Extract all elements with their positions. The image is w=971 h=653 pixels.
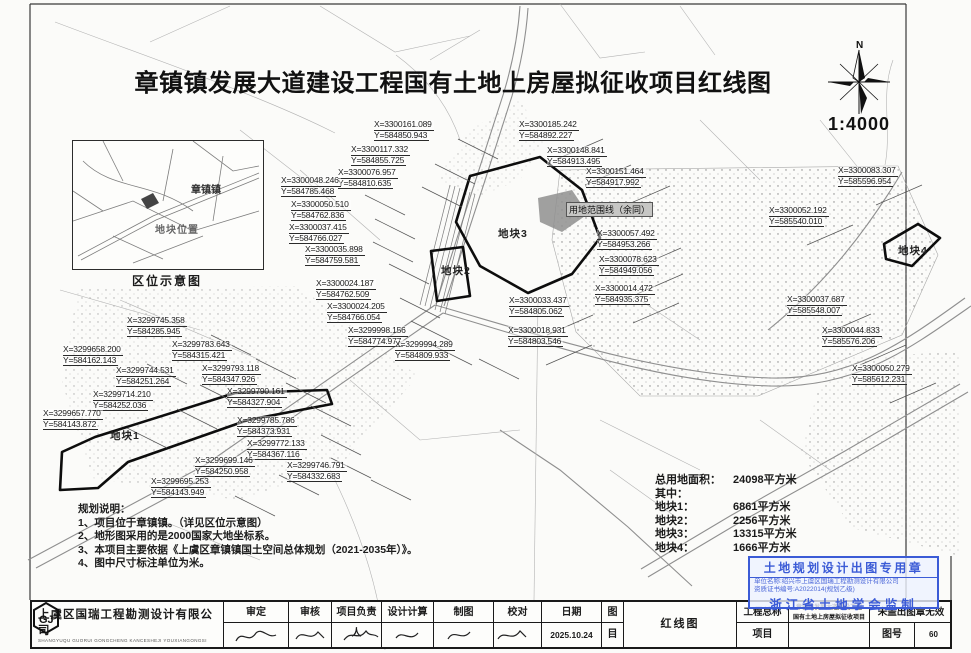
company-cell: GJ 上虞区国瑞工程勘测设计有限公司 SHANGYUQU GUORUI GONG… — [32, 602, 224, 647]
coordinate-label: X=3300014.472Y=584935.375 — [595, 284, 655, 305]
plot-label: 地块4 — [898, 243, 928, 258]
note-item: 1、项目位于章镇镇。（详见区位示意图） — [78, 517, 450, 531]
coordinate-label: X=3300076.957Y=584810.635 — [338, 168, 398, 189]
svg-text:GJ: GJ — [39, 614, 54, 626]
drawing-name-cell: 红线图 — [624, 602, 737, 647]
coordinate-label: X=3300033.437Y=584805.062 — [509, 296, 569, 317]
coordinate-label: X=3300083.307Y=585596.954 — [838, 166, 898, 187]
coordinate-label: X=3300161.089Y=584850.943 — [374, 120, 434, 141]
date-value: 2025.10.24 — [542, 623, 601, 647]
stamp-issuer: 浙江省土地学会监制 — [750, 593, 937, 613]
company-logo-icon: GJ — [32, 602, 60, 634]
coordinate-label: X=3299714.210Y=584252.036 — [93, 390, 153, 411]
coordinate-label: X=3299746.791Y=584332.683 — [287, 461, 347, 482]
coordinate-label: X=3300185.242Y=584892.227 — [519, 120, 579, 141]
inset-site-label: 地块位置 — [155, 221, 199, 236]
boundary-line-label: 用地范围线（余同） — [566, 202, 653, 217]
certification-stamp: 土地规划设计出图专用章 单位名称:绍兴市上虞区国瑞工程勘测设计有限公司 资质证书… — [748, 556, 939, 609]
stamp-cert-no: 资质证书编号:A2022014(规划乙级) — [750, 586, 937, 594]
coordinate-label: X=3300052.192Y=585540.010 — [769, 206, 829, 227]
item-label: 项目 — [737, 623, 788, 647]
coordinate-label: X=3300037.415Y=584766.027 — [289, 223, 349, 244]
notes-list: 1、项目位于章镇镇。（详见区位示意图）2、地形图采用的是2000国家大地坐标系。… — [78, 517, 450, 571]
sign-col-label: 设计计算 — [382, 602, 433, 623]
coordinate-label: X=3300117.332Y=584855.725 — [351, 145, 410, 166]
coordinate-label: X=3299745.358Y=584285.945 — [127, 316, 187, 337]
inset-caption: 区位示意图 — [72, 272, 262, 289]
coordinate-label: X=3299695.253Y=584143.949 — [151, 477, 211, 498]
coordinate-label: X=3299793.118Y=584347.926 — [202, 364, 261, 385]
area-statistics: 总用地面积：24098平方米其中：地块1：6861平方米地块2：2256平方米地… — [655, 474, 797, 555]
coordinate-label: X=3299657.770Y=584143.872 — [43, 409, 103, 430]
redline-map-sheet: { "title": "章镇镇发展大道建设工程国有土地上房屋拟征收项目红线图",… — [0, 0, 971, 653]
coordinate-label: X=3300018.931Y=584803.546 — [508, 326, 568, 347]
coordinate-label: X=3300148.841Y=584913.495 — [547, 146, 607, 167]
inset-streets — [73, 141, 260, 266]
sign-col-label: 项目负责人 — [332, 602, 381, 623]
coordinate-label: X=3300048.246Y=584785.468 — [281, 176, 341, 197]
stamp-company: 单位名称:绍兴市上虞区国瑞工程勘测设计有限公司 — [750, 578, 937, 586]
stat-row: 地块1：6861平方米 — [655, 501, 797, 515]
note-item: 2、地形图采用的是2000国家大地坐标系。 — [78, 530, 450, 544]
coordinate-label: X=3299785.786Y=584373.931 — [237, 416, 297, 437]
coordinate-label: X=3299772.133Y=584367.116 — [247, 439, 307, 460]
sign-col-label: 校对 — [494, 602, 541, 623]
coordinate-label: X=3300050.510Y=584762.836 — [291, 200, 351, 221]
date-label: 日期 — [542, 602, 601, 623]
project-name-empty — [789, 623, 869, 647]
sheet-cat-top: 图 — [602, 602, 623, 623]
sheet-category-cell: 图 目 — [602, 602, 624, 647]
sheet-cat-bottom: 目 — [602, 623, 623, 647]
coordinate-label: X=3300151.464Y=584917.992 — [586, 167, 646, 188]
stamp-title: 土地规划设计出图专用章 — [750, 558, 937, 578]
north-arrow-icon: N — [824, 38, 894, 118]
coordinate-label: X=3299658.200Y=584162.143 — [63, 345, 123, 366]
coordinate-label: X=3299744.531Y=584251.264 — [116, 366, 176, 387]
notes-title: 规划说明： — [78, 503, 450, 517]
coordinate-label: X=3300044.833Y=585576.206 — [822, 326, 882, 347]
company-name: 上虞区国瑞工程勘测设计有限公司 — [38, 606, 223, 638]
stat-row: 地块3：13315平方米 — [655, 528, 797, 542]
coordinate-label: X=3300024.205Y=584766.054 — [327, 302, 387, 323]
coordinate-label: X=3299790.161Y=584327.904 — [227, 387, 287, 408]
stat-row: 地块2：2256平方米 — [655, 515, 797, 529]
coordinate-label: X=3300024.187Y=584762.509 — [316, 279, 376, 300]
coordinate-label: X=3299994.289Y=584809.933 — [395, 340, 455, 361]
sign-col-label: 审定 — [224, 602, 288, 623]
coordinate-label: X=3300037.687Y=585548.007 — [787, 295, 847, 316]
coordinate-label: X=3299783.643Y=584315.421 — [172, 340, 232, 361]
coordinate-label: X=3300057.492Y=584953.266 — [597, 229, 657, 250]
coordinate-label: X=3300035.898Y=584759.581 — [305, 245, 365, 266]
svg-text:N: N — [856, 40, 863, 51]
location-inset-map: 章镇镇 地块位置 — [72, 140, 264, 270]
stat-row: 其中： — [655, 488, 797, 502]
company-name-en: SHANGYUQU GUORUI GONGCHENG KANCESHEJI YO… — [38, 638, 223, 643]
coordinate-label: X=3300050.279Y=585612.231 — [852, 364, 912, 385]
sign-col-label: 制图 — [434, 602, 493, 623]
project-name-line2: 国有土地上房屋拟征收项目 — [789, 613, 869, 623]
date-cell: 日期 2025.10.24 — [542, 602, 602, 647]
signature-scribbles — [224, 623, 544, 649]
note-item: 3、本项目主要依据《上虞区章镇镇国土空间总体规划（2021-2035年）》。 — [78, 544, 450, 558]
plot-label: 地块1 — [110, 428, 140, 443]
sheet-no-label: 图号 — [870, 623, 915, 647]
coordinate-label: X=3299699.146Y=584250.958 — [195, 456, 255, 477]
planning-notes: 规划说明： 1、项目位于章镇镇。（详见区位示意图）2、地形图采用的是2000国家… — [78, 503, 450, 571]
inset-town-label: 章镇镇 — [191, 181, 221, 196]
sheet-no-value: 60 — [915, 623, 952, 647]
sign-col-label: 审核 — [289, 602, 331, 623]
note-item: 4、图中尺寸标注单位为米。 — [78, 557, 450, 571]
page-title: 章镇镇发展大道建设工程国有土地上房屋拟征收项目红线图 — [62, 63, 844, 98]
plot-label: 地块3 — [498, 226, 528, 241]
plot-label: 地块2 — [441, 263, 471, 278]
stat-row: 地块4：1666平方米 — [655, 542, 797, 556]
stat-row: 总用地面积：24098平方米 — [655, 474, 797, 488]
coordinate-label: X=3300078.623Y=584949.056 — [599, 255, 659, 276]
